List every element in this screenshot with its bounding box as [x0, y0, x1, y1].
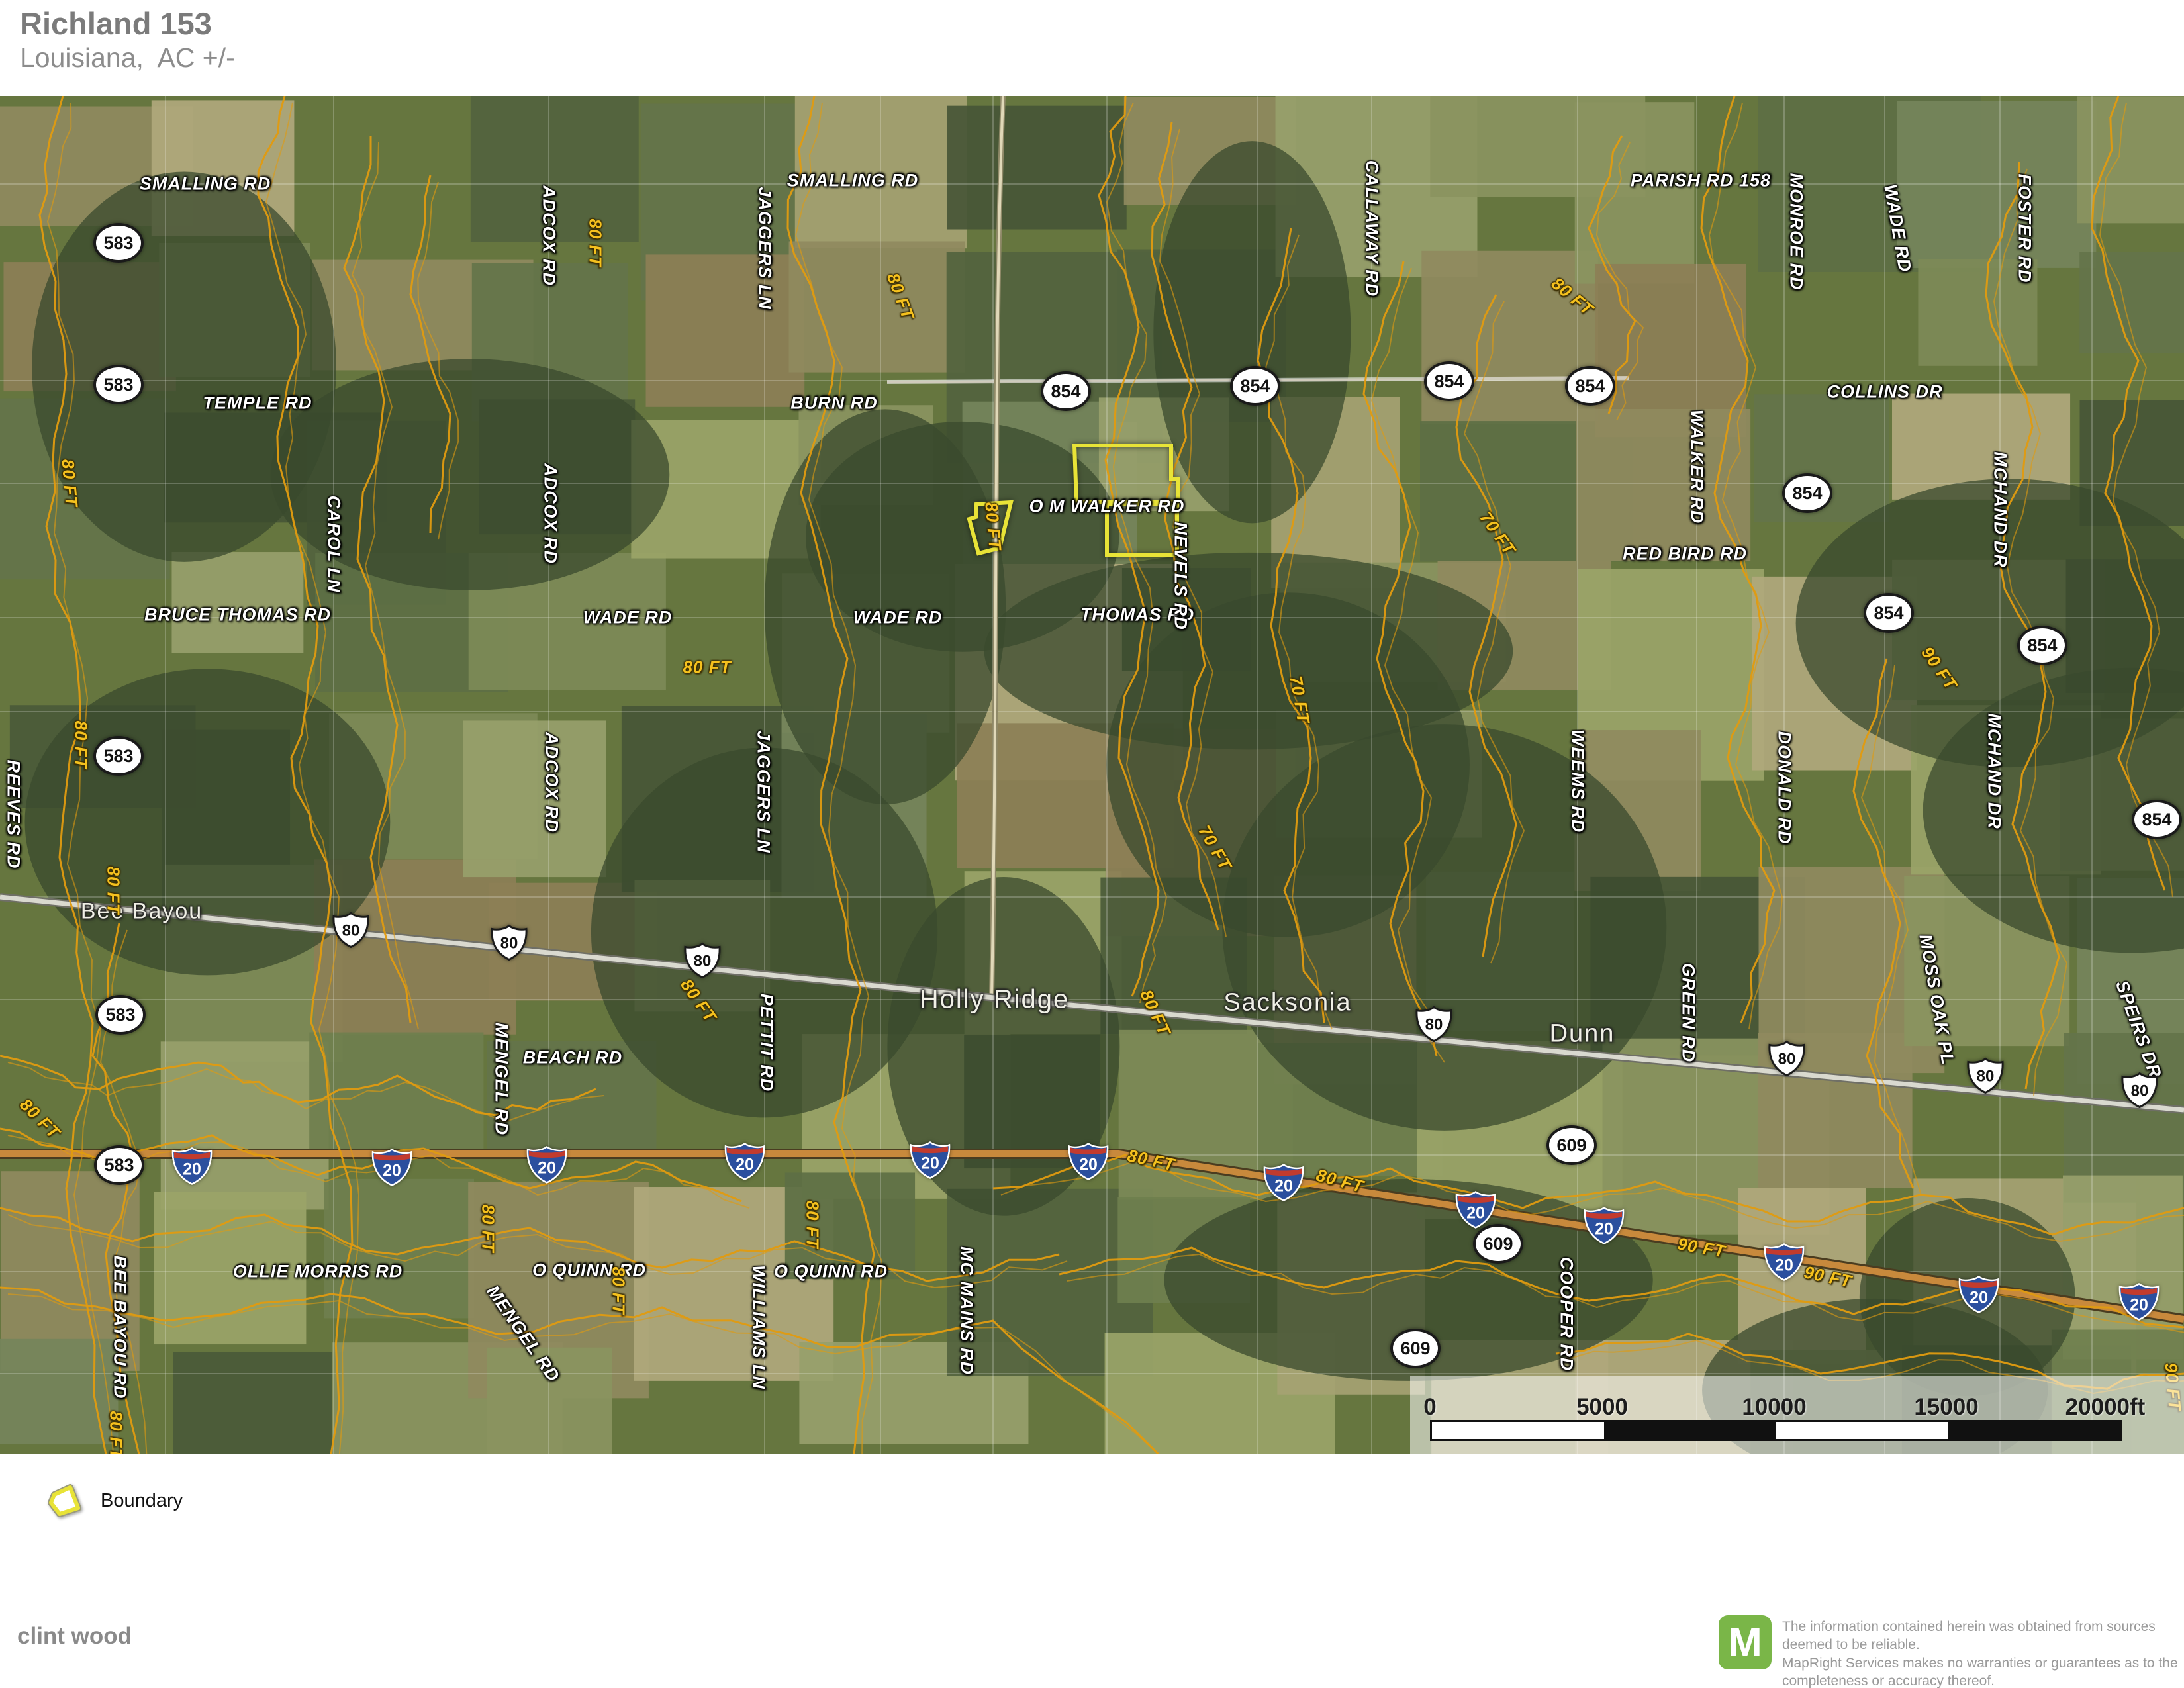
- page-title: Richland 153: [20, 5, 212, 42]
- us-highway-shield: 80: [1767, 1040, 1807, 1082]
- road-label: BURN RD: [790, 393, 878, 414]
- svg-text:80: 80: [500, 935, 518, 953]
- svg-text:20: 20: [921, 1154, 939, 1173]
- disclaimer-line: The information contained herein was obt…: [1782, 1618, 2179, 1636]
- road-label: SMALLING RD: [787, 171, 918, 191]
- place-label: Holly Ridge: [920, 985, 1070, 1015]
- us-highway-shield: 80: [2120, 1072, 2160, 1113]
- scale-bar-segment: [1604, 1422, 1776, 1439]
- road-label: SMALLING RD: [140, 174, 271, 195]
- road-label: WEEMS RD: [1568, 729, 1588, 833]
- road-label: PARISH RD 158: [1631, 171, 1771, 191]
- svg-text:80: 80: [1425, 1016, 1443, 1034]
- contour-elevation-label: 80 FT: [980, 501, 1005, 551]
- page-subtitle: Louisiana, AC +/-: [20, 42, 235, 73]
- prepared-by: clint wood: [17, 1623, 132, 1650]
- svg-text:80: 80: [694, 953, 712, 970]
- place-label: Dunn: [1550, 1020, 1615, 1049]
- interstate-20-shield: 20: [724, 1142, 766, 1185]
- road-label: ADCOX RD: [540, 463, 561, 564]
- state-highway-shield: 854: [1782, 473, 1832, 513]
- road-label: REEVES RD: [3, 759, 24, 868]
- boundary-polygon: [1074, 445, 1178, 502]
- contour-elevation-label: 80 FT: [57, 458, 81, 508]
- scale-tick-label: 0: [1423, 1394, 1436, 1421]
- svg-text:20: 20: [736, 1156, 754, 1174]
- map-canvas[interactable]: Bee BayouHolly RidgeSacksoniaDunnSMALLIN…: [0, 96, 2184, 1454]
- place-label: Bee Bayou: [81, 899, 203, 925]
- road-label: MCHAND DR: [1984, 713, 2005, 829]
- road-label: BEE BAYOU RD: [110, 1255, 130, 1399]
- disclaimer-line: deemed to be reliable.: [1782, 1636, 2179, 1654]
- legend-item-label: Boundary: [101, 1490, 183, 1512]
- state-highway-shield: 854: [1565, 366, 1615, 406]
- interstate-20-shield: 20: [1958, 1275, 2000, 1318]
- mapright-logo-letter: M: [1728, 1619, 1762, 1666]
- road-label: GREEN RD: [1678, 963, 1699, 1063]
- road-label: JAGGERS LN: [755, 187, 775, 310]
- road-label: NEVELS RD: [1170, 522, 1191, 630]
- state-highway-shield: 583: [94, 1145, 144, 1185]
- svg-text:20: 20: [1970, 1289, 1988, 1307]
- interstate-20-shield: 20: [526, 1145, 568, 1188]
- state-highway-shield: 854: [1864, 593, 1914, 633]
- svg-text:20: 20: [383, 1162, 401, 1180]
- interstate-20-shield: 20: [1763, 1243, 1805, 1286]
- scale-tick-label: 10000: [1742, 1394, 1806, 1421]
- disclaimer-line: MapRight Services makes no warranties or…: [1782, 1654, 2179, 1672]
- scale-bar: 05000100001500020000ft: [1410, 1376, 2184, 1454]
- scale-bar-segment: [1432, 1422, 1604, 1439]
- contour-elevation-label: 80 FT: [683, 657, 732, 678]
- us-highway-shield: 80: [331, 912, 371, 953]
- interstate-20-shield: 20: [909, 1141, 951, 1184]
- contour-elevation-label: 80 FT: [106, 1411, 126, 1454]
- svg-text:80: 80: [1778, 1051, 1796, 1068]
- road-label: WALKER RD: [1687, 410, 1707, 524]
- interstate-20-shield: 20: [1067, 1142, 1110, 1185]
- state-highway-shield: 854: [2017, 626, 2067, 665]
- state-highway-shield: 854: [2132, 800, 2182, 839]
- scale-bar-segments: [1430, 1420, 2122, 1441]
- road-label: COLLINS DR: [1827, 382, 1943, 402]
- state-highway-shield: 854: [1424, 361, 1474, 401]
- legend: Boundary: [48, 1484, 183, 1517]
- road-label: ADCOX RD: [539, 185, 559, 286]
- road-label: O M WALKER RD: [1029, 496, 1185, 517]
- scale-bar-segment: [1776, 1422, 1948, 1439]
- us-highway-shield: 80: [683, 942, 722, 984]
- interstate-20-shield: 20: [371, 1148, 413, 1191]
- svg-text:20: 20: [2130, 1296, 2148, 1315]
- svg-text:20: 20: [1079, 1156, 1098, 1174]
- road-label: CAROL LN: [324, 496, 344, 593]
- road-label: MENGEL RD: [491, 1023, 512, 1136]
- scale-tick-label: 5000: [1576, 1394, 1628, 1421]
- state-highway-shield: 854: [1230, 366, 1280, 406]
- disclaimer-text: The information contained herein was obt…: [1782, 1618, 2179, 1688]
- contour-elevation-label: 80 FT: [478, 1205, 499, 1253]
- road-label: WADE RD: [583, 608, 673, 628]
- road-label: O QUINN RD: [774, 1262, 888, 1282]
- state-highway-shield: 583: [93, 365, 144, 404]
- state-highway-shield: 609: [1390, 1329, 1441, 1368]
- road-label: COOPER RD: [1556, 1257, 1577, 1372]
- road-label: BEACH RD: [523, 1048, 623, 1068]
- us-highway-shield: 80: [1966, 1057, 2005, 1099]
- state-highway-shield: 583: [93, 736, 144, 776]
- us-highway-shield: 80: [489, 924, 529, 966]
- boundary-polygon-icon: [48, 1484, 82, 1517]
- us-highway-shield: 80: [1414, 1006, 1454, 1047]
- interstate-20-shield: 20: [171, 1147, 213, 1190]
- map-export-page: Richland 153 Louisiana, AC +/- Bee Bayou…: [0, 0, 2184, 1688]
- contour-elevation-label: 80 FT: [802, 1201, 823, 1249]
- interstate-20-shield: 20: [2118, 1282, 2160, 1325]
- road-label: OLLIE MORRIS RD: [233, 1262, 403, 1282]
- scale-bar-segment: [1948, 1422, 2120, 1439]
- svg-text:80: 80: [342, 922, 360, 940]
- road-label: MC MAINS RD: [957, 1246, 977, 1375]
- state-highway-shield: 854: [1041, 371, 1091, 411]
- scale-tick-label: 15000: [1914, 1394, 1978, 1421]
- disclaimer-line: completeness or accuracy thereof.: [1782, 1672, 2179, 1688]
- contour-elevation-label: 80 FT: [585, 219, 606, 267]
- state-highway-shield: 583: [93, 223, 144, 263]
- road-label: CALLAWAY RD: [1362, 160, 1382, 297]
- state-highway-shield: 609: [1546, 1125, 1597, 1165]
- road-label: FOSTER RD: [2015, 173, 2035, 283]
- road-label: MCHAND DR: [1990, 451, 2011, 567]
- road-label: RED BIRD RD: [1623, 544, 1747, 565]
- svg-text:20: 20: [1466, 1204, 1485, 1223]
- boundary-overlay: [0, 96, 2184, 1454]
- svg-text:80: 80: [1977, 1068, 1995, 1086]
- place-label: Sacksonia: [1223, 989, 1351, 1017]
- road-label: WADE RD: [853, 608, 943, 628]
- contour-elevation-label: 80 FT: [103, 867, 124, 915]
- contour-elevation-label: 80 FT: [608, 1267, 629, 1315]
- road-label: O QUINN RD: [532, 1260, 646, 1281]
- road-label: MONROE RD: [1786, 173, 1807, 291]
- scale-end-label: 20000ft: [2065, 1394, 2146, 1421]
- state-highway-shield: 583: [95, 995, 146, 1035]
- road-label: WILLIAMS LN: [749, 1265, 769, 1389]
- svg-text:20: 20: [538, 1159, 556, 1178]
- interstate-20-shield: 20: [1262, 1163, 1305, 1206]
- mapright-logo: M: [1719, 1615, 1772, 1669]
- road-label: BRUCE THOMAS RD: [144, 605, 331, 626]
- road-label: TEMPLE RD: [203, 393, 312, 414]
- road-label: DONALD RD: [1774, 731, 1795, 845]
- svg-text:80: 80: [2131, 1082, 2149, 1100]
- svg-text:20: 20: [1595, 1220, 1613, 1239]
- svg-text:20: 20: [1775, 1256, 1793, 1275]
- road-label: JAGGERS LN: [753, 730, 774, 853]
- road-label: ADCOX RD: [542, 732, 562, 833]
- interstate-20-shield: 20: [1454, 1190, 1497, 1233]
- interstate-20-shield: 20: [1583, 1206, 1625, 1249]
- contour-elevation-label: 80 FT: [71, 721, 91, 769]
- svg-text:20: 20: [1274, 1177, 1293, 1196]
- svg-text:20: 20: [183, 1160, 201, 1179]
- road-label: PETTIT RD: [757, 994, 777, 1092]
